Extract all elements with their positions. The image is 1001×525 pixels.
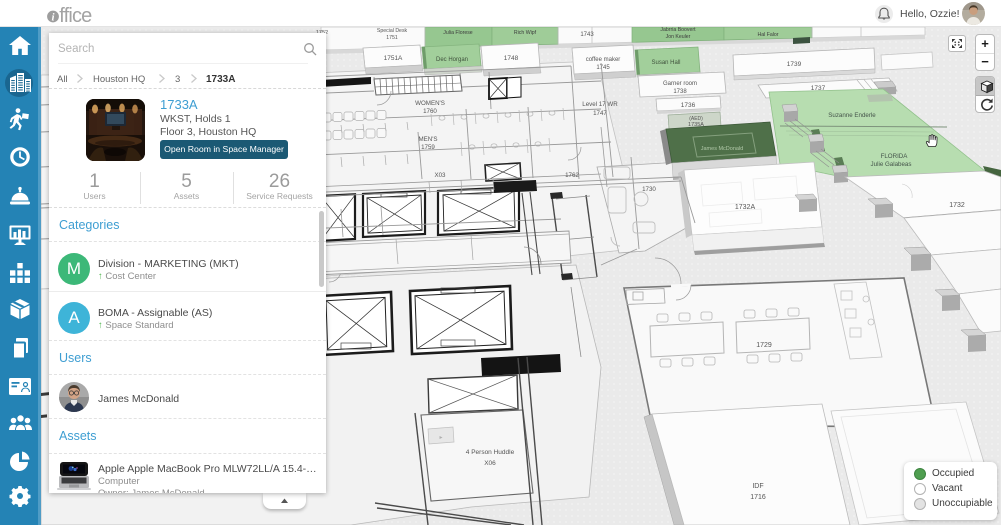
- svg-text:▸: ▸: [439, 435, 442, 441]
- svg-text:4 Person Huddle: 4 Person Huddle: [466, 449, 515, 456]
- svg-text:Jabrria Boovert: Jabrria Boovert: [660, 27, 696, 33]
- svg-text:IDF: IDF: [752, 483, 763, 490]
- svg-text:X03: X03: [434, 172, 446, 179]
- svg-text:1739: 1739: [787, 61, 802, 68]
- svg-text:Julia Florese: Julia Florese: [443, 30, 473, 36]
- svg-text:1732A: 1732A: [735, 204, 756, 211]
- svg-text:1745: 1745: [596, 65, 610, 71]
- svg-text:1747: 1747: [593, 110, 607, 117]
- svg-text:1760: 1760: [423, 108, 437, 115]
- svg-text:1716: 1716: [750, 494, 766, 501]
- svg-text:Suzanne Enderle: Suzanne Enderle: [828, 112, 876, 119]
- svg-text:Rich Wipf: Rich Wipf: [514, 30, 537, 36]
- svg-text:1732: 1732: [949, 202, 965, 209]
- svg-text:Dec Horgan: Dec Horgan: [436, 57, 468, 63]
- svg-text:Special Desk: Special Desk: [377, 28, 408, 34]
- svg-text:MEN'S: MEN'S: [418, 136, 437, 143]
- svg-text:1762: 1762: [565, 172, 579, 179]
- svg-text:WOMEN'S: WOMEN'S: [415, 100, 445, 107]
- svg-text:Garner room: Garner room: [663, 81, 697, 87]
- svg-text:1738: 1738: [673, 89, 687, 95]
- svg-text:Hal Falor: Hal Falor: [757, 32, 778, 38]
- svg-text:coffee maker: coffee maker: [586, 57, 621, 63]
- svg-text:1736: 1736: [681, 102, 696, 109]
- svg-text:1751: 1751: [386, 35, 398, 41]
- svg-text:Julie Galabeas: Julie Galabeas: [871, 161, 912, 168]
- svg-text:1759: 1759: [421, 144, 435, 151]
- svg-text:X06: X06: [484, 460, 496, 467]
- svg-text:Susan Hall: Susan Hall: [651, 60, 680, 66]
- svg-text:James McDonald: James McDonald: [701, 146, 744, 152]
- svg-text:1729: 1729: [756, 342, 772, 349]
- svg-text:1730: 1730: [642, 186, 656, 193]
- svg-text:1751A: 1751A: [384, 55, 403, 62]
- svg-text:1743: 1743: [580, 32, 594, 38]
- svg-text:Level 17 WR: Level 17 WR: [582, 101, 618, 108]
- svg-text:Jon Keuler: Jon Keuler: [666, 34, 691, 40]
- svg-text:1748: 1748: [504, 55, 519, 62]
- svg-text:FLORIDA: FLORIDA: [881, 153, 909, 160]
- svg-text:ffice: ffice: [59, 5, 92, 27]
